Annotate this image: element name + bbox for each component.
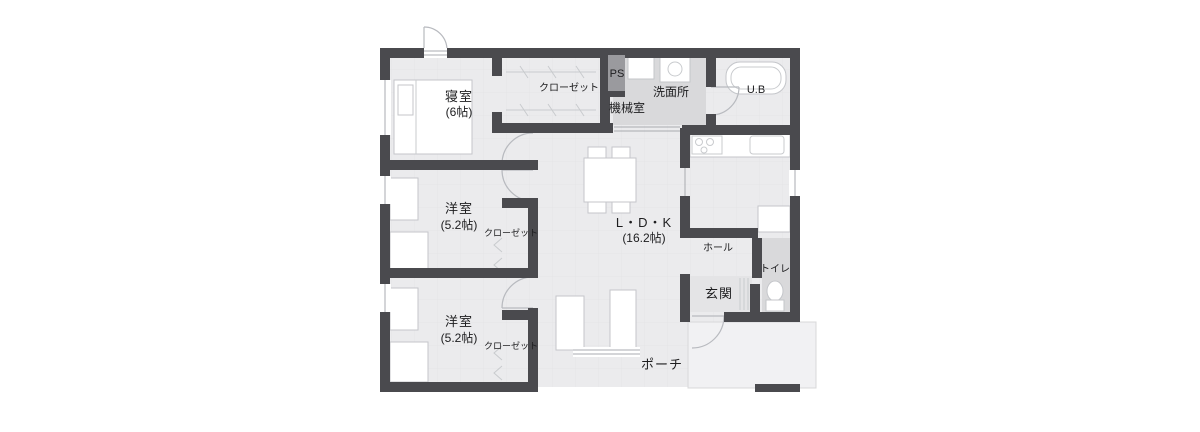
toilet-bowl — [767, 281, 783, 301]
label-machine-room: 機械室 — [609, 100, 645, 115]
floor-plan: 寝室 (6帖) クローゼット PS 機械室 洗面所 U.B 洋室 (5.2帖) … — [0, 0, 1200, 432]
storage — [758, 206, 790, 232]
wash-basin — [628, 57, 654, 79]
chair — [612, 202, 630, 213]
porch-step-wall — [755, 384, 800, 392]
exterior-door-arc — [424, 27, 447, 50]
sofa — [610, 290, 636, 348]
label-bedroom-size: (6帖) — [446, 104, 473, 119]
label-entrance: 玄関 — [705, 286, 733, 301]
chair — [612, 147, 630, 158]
label-closet-bottom: クローゼット — [484, 340, 538, 351]
label-western1-size: (5.2帖) — [441, 217, 478, 232]
label-toilet: トイレ — [760, 264, 790, 275]
desk — [390, 342, 428, 382]
porch-floor — [688, 322, 816, 388]
chair — [588, 147, 606, 158]
label-ldk: L・D・K — [616, 215, 672, 230]
floor-plan-page: 寝室 (6帖) クローゼット PS 機械室 洗面所 U.B 洋室 (5.2帖) … — [0, 0, 1200, 432]
label-washroom: 洗面所 — [653, 85, 689, 99]
bed-single — [390, 178, 418, 220]
dining-table — [584, 158, 636, 202]
bed-single — [390, 288, 418, 330]
label-bedroom: 寝室 — [445, 89, 473, 104]
label-western2: 洋室 — [445, 314, 473, 329]
label-bath: U.B — [747, 84, 765, 96]
label-western1: 洋室 — [445, 201, 473, 216]
pillow — [398, 85, 413, 115]
toilet-tank — [766, 300, 784, 311]
sofa — [556, 296, 584, 350]
kitchen-counter — [690, 133, 790, 157]
label-closet-top: クローゼット — [539, 82, 599, 94]
label-porch: ポーチ — [641, 357, 683, 372]
chair — [588, 202, 606, 213]
label-hall: ホール — [703, 242, 733, 254]
label-ps: PS — [610, 68, 625, 80]
washing-machine — [660, 56, 690, 82]
label-closet-mid: クローゼット — [484, 227, 538, 238]
label-western2-size: (5.2帖) — [441, 330, 478, 345]
ldk-sliding-window — [573, 347, 640, 357]
label-ldk-size: (16.2帖) — [622, 230, 665, 245]
desk — [390, 232, 428, 272]
